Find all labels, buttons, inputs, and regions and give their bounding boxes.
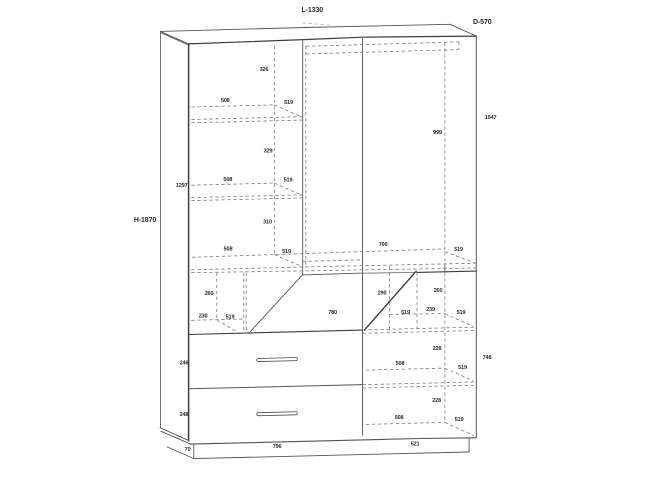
svg-text:519: 519 [458,365,467,371]
svg-text:246: 246 [180,361,189,367]
svg-text:329: 329 [264,148,273,154]
svg-text:239: 239 [426,307,435,313]
svg-text:519: 519 [226,315,235,321]
svg-text:780: 780 [328,310,337,316]
svg-text:228: 228 [432,398,441,404]
svg-text:519: 519 [284,178,293,184]
svg-text:748: 748 [483,355,492,361]
svg-text:290: 290 [378,291,387,297]
svg-text:1297: 1297 [176,183,188,189]
svg-text:519: 519 [457,310,466,316]
svg-text:326: 326 [260,67,269,73]
svg-text:228: 228 [433,346,442,352]
svg-text:519: 519 [454,247,463,253]
svg-text:700: 700 [379,242,388,248]
svg-text:D-570: D-570 [473,19,492,26]
svg-text:70: 70 [185,447,191,453]
svg-text:260: 260 [205,291,214,297]
svg-text:999: 999 [433,130,442,136]
svg-text:508: 508 [395,415,404,421]
svg-text:521: 521 [411,442,420,448]
svg-text:230: 230 [199,314,208,320]
svg-text:508: 508 [223,177,232,183]
svg-text:508: 508 [221,98,230,104]
svg-text:796: 796 [273,444,282,450]
svg-text:1047: 1047 [485,115,497,121]
svg-text:508: 508 [396,361,405,367]
svg-text:519: 519 [284,100,293,106]
svg-text:519: 519 [401,310,410,316]
svg-text:508: 508 [224,247,233,253]
svg-text:519: 519 [455,417,464,423]
svg-text:519: 519 [282,249,291,255]
svg-text:248: 248 [180,412,189,418]
svg-text:260: 260 [434,288,443,294]
svg-text:310: 310 [263,220,272,226]
svg-text:H-1870: H-1870 [134,217,157,224]
svg-text:L-1330: L-1330 [302,7,324,14]
